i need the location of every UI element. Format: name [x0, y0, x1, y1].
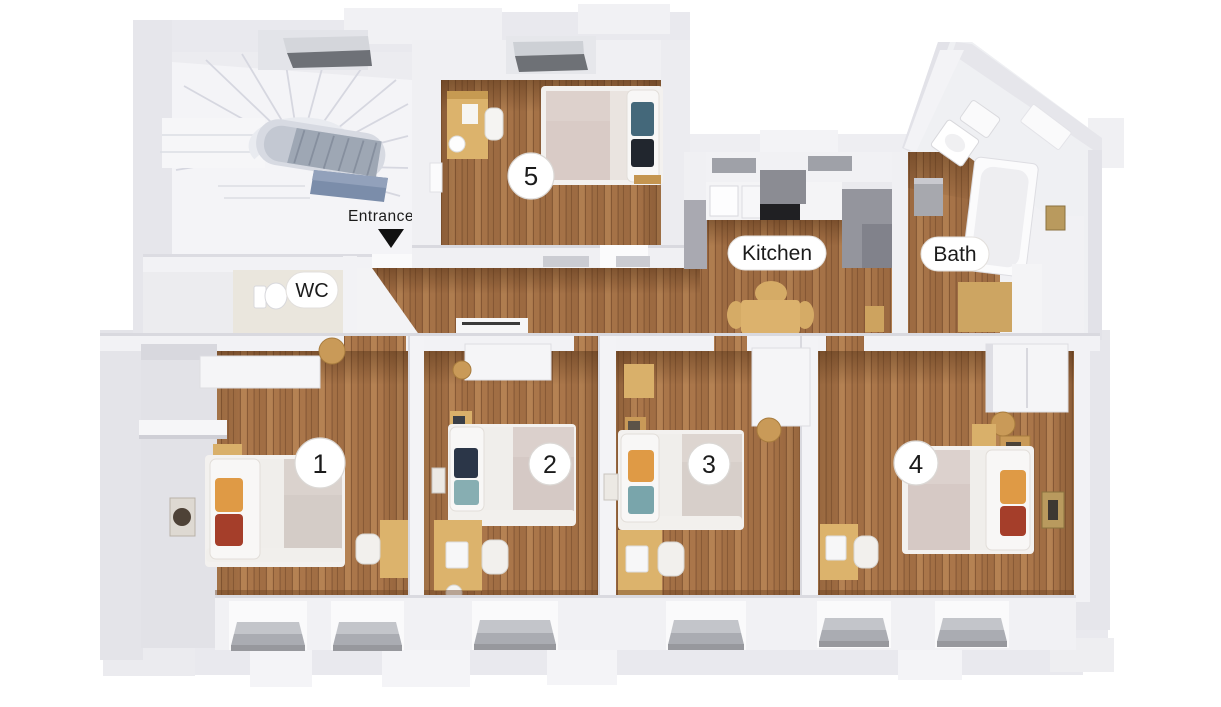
- svg-text:WC: WC: [295, 280, 328, 302]
- svg-text:Entrance: Entrance: [348, 208, 414, 225]
- svg-text:Bath: Bath: [933, 243, 976, 266]
- svg-text:Kitchen: Kitchen: [742, 242, 812, 265]
- svg-text:5: 5: [524, 161, 538, 191]
- svg-text:1: 1: [312, 449, 327, 479]
- svg-text:4: 4: [909, 449, 923, 479]
- svg-text:2: 2: [543, 451, 557, 479]
- svg-text:3: 3: [702, 451, 716, 479]
